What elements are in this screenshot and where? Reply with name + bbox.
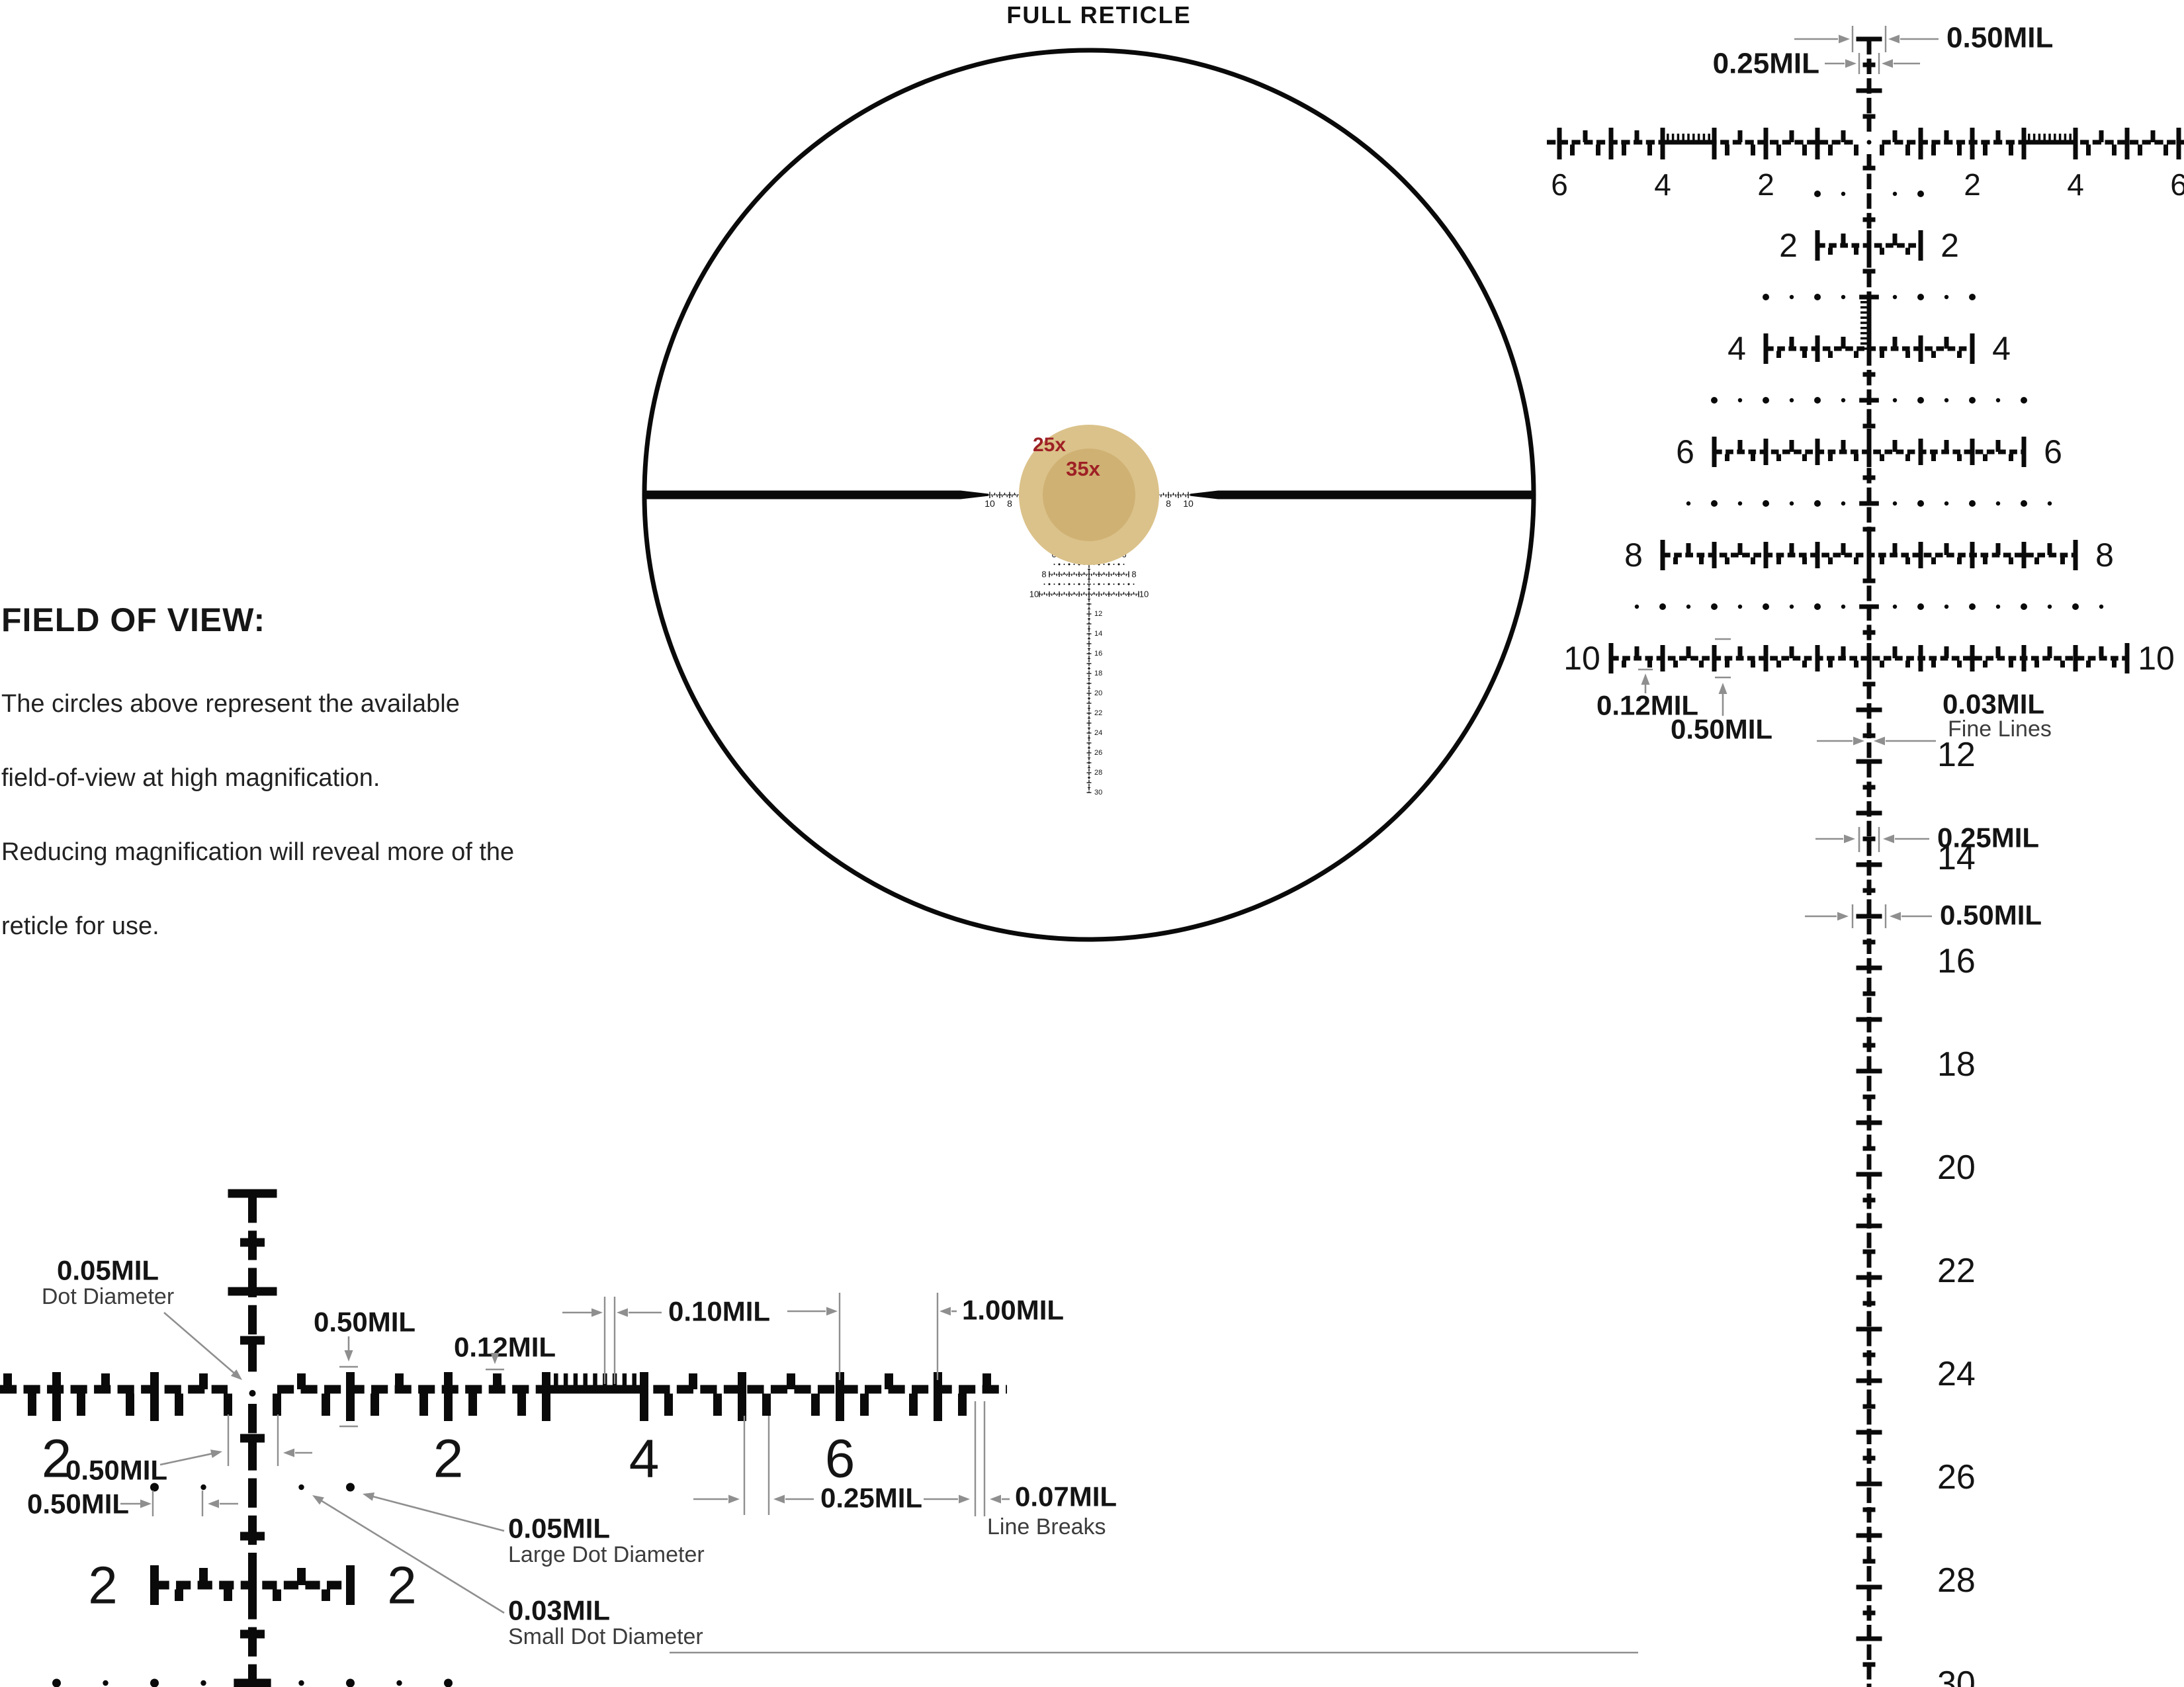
row-number: 10 bbox=[1139, 589, 1149, 599]
small-dot-label: 0.03MIL bbox=[508, 1595, 610, 1626]
ranging-dot bbox=[1064, 584, 1065, 585]
ranging-dot bbox=[1104, 584, 1105, 585]
ranging-dot bbox=[1094, 584, 1095, 585]
ranging-dot bbox=[1686, 501, 1690, 505]
arrowhead bbox=[1844, 835, 1855, 844]
magnification-label-35x: 35x bbox=[1066, 457, 1100, 481]
reticle-spec-sheet: 2468102468102244668810101214161820222426… bbox=[0, 0, 2184, 1687]
row-number: 8 bbox=[1131, 570, 1136, 580]
ranging-dot bbox=[1944, 501, 1948, 505]
ranging-dot bbox=[1841, 192, 1845, 196]
ranging-dot bbox=[1059, 584, 1061, 585]
ranging-dot bbox=[1814, 500, 1821, 507]
heavy-post-right bbox=[1190, 491, 1532, 499]
fov-line-1: The circles above represent the availabl… bbox=[1, 667, 514, 741]
ranging-dot bbox=[1084, 584, 1085, 585]
ranging-dot bbox=[1790, 295, 1794, 299]
arrowhead bbox=[1853, 737, 1864, 746]
large-dot-label: 0.05MIL bbox=[508, 1513, 610, 1544]
arrowhead bbox=[345, 1350, 353, 1362]
ranging-dot bbox=[1133, 584, 1135, 585]
axis-number: 2 bbox=[1964, 167, 1981, 202]
ranging-dot bbox=[1996, 501, 2000, 505]
ranging-dot bbox=[1841, 605, 1845, 609]
ranging-dot bbox=[298, 1680, 304, 1686]
drop-number: 18 bbox=[1094, 670, 1102, 677]
arrowhead bbox=[1890, 912, 1901, 921]
row-number: 8 bbox=[1624, 537, 1643, 574]
tall-tick-height-label: 0.50MIL bbox=[314, 1307, 415, 1338]
row-number: 6 bbox=[1676, 433, 1694, 470]
ranging-dot bbox=[1969, 500, 1976, 507]
ranging-dot bbox=[1118, 564, 1120, 566]
row-number: 2 bbox=[387, 1556, 417, 1615]
ranging-dot bbox=[1917, 500, 1924, 507]
ranging-dot bbox=[2099, 605, 2103, 609]
drop-number: 28 bbox=[1094, 769, 1102, 777]
drop-number: 22 bbox=[1094, 709, 1102, 717]
ranging-dot bbox=[1944, 295, 1948, 299]
ranging-dot bbox=[1944, 398, 1948, 402]
arrowhead bbox=[591, 1309, 603, 1317]
center-dot-caption: Dot Diameter bbox=[42, 1284, 174, 1309]
ranging-dot bbox=[1790, 605, 1794, 609]
ranging-dot bbox=[103, 1680, 108, 1686]
detail-diagram-annotations: 0.05MILDot Diameter0.50MIL0.12MIL0.10MIL… bbox=[27, 1255, 1117, 1650]
ranging-dot bbox=[1044, 584, 1045, 585]
top-small-tick-width-label: 0.25MIL bbox=[1713, 48, 1819, 80]
ranging-dot bbox=[1128, 584, 1130, 585]
arrowhead bbox=[140, 1500, 152, 1508]
ranging-dot bbox=[346, 1483, 355, 1492]
ranging-dot bbox=[1738, 605, 1742, 609]
ranging-dot bbox=[1763, 397, 1769, 404]
axis-number: 2 bbox=[1757, 167, 1774, 202]
ranging-dot bbox=[444, 1679, 453, 1687]
ranging-dot bbox=[1711, 397, 1718, 404]
drop-number: 12 bbox=[1094, 610, 1102, 618]
ranging-dot bbox=[1814, 191, 1821, 197]
arrowhead bbox=[1883, 835, 1894, 844]
ranging-dot bbox=[1763, 603, 1769, 610]
small-dot-caption: Small Dot Diameter bbox=[508, 1624, 703, 1649]
drop-number: 20 bbox=[1094, 689, 1102, 697]
drop-number: 24 bbox=[1094, 729, 1102, 737]
ranging-dot bbox=[1841, 501, 1845, 505]
fine-tick-spacing-label: 0.10MIL bbox=[668, 1296, 770, 1327]
ranging-dot bbox=[1078, 584, 1080, 585]
arrowhead bbox=[1641, 673, 1650, 685]
large-dot-caption: Large Dot Diameter bbox=[508, 1542, 705, 1567]
ranging-dot bbox=[200, 1680, 206, 1686]
ranging-dot bbox=[1711, 603, 1718, 610]
page-title: FULL RETICLE bbox=[1006, 1, 1191, 29]
ranging-dot bbox=[1841, 398, 1845, 402]
ranging-dot bbox=[1893, 605, 1897, 609]
ranging-dot bbox=[1123, 564, 1125, 565]
row-number: 8 bbox=[1041, 570, 1046, 580]
ranging-dot bbox=[1996, 605, 2000, 609]
ranging-dot bbox=[1659, 603, 1666, 610]
fov-line-4: reticle for use. bbox=[1, 889, 514, 963]
right-diagram-annotations: 0.50MIL0.25MIL0.12MIL0.50MIL0.03MILFine … bbox=[670, 22, 2053, 1653]
ranging-dot bbox=[200, 1485, 206, 1490]
drop-number: 16 bbox=[1094, 650, 1102, 658]
arrowhead bbox=[939, 1307, 951, 1316]
center-dot bbox=[249, 1390, 256, 1397]
line-width-label: 0.03MIL bbox=[1943, 689, 2044, 720]
row-number: 8 bbox=[2095, 537, 2114, 574]
ranging-dot bbox=[396, 1680, 402, 1686]
ranging-dot bbox=[1118, 584, 1120, 585]
field-of-view-heading: FIELD OF VIEW: bbox=[1, 601, 265, 639]
ranging-dot bbox=[2048, 605, 2052, 609]
arrowhead bbox=[361, 1490, 374, 1501]
line-breaks-caption: Line Breaks bbox=[987, 1514, 1106, 1539]
axis-number: 10 bbox=[1183, 498, 1194, 509]
ranging-dot bbox=[1814, 397, 1821, 404]
row-number: 4 bbox=[1727, 330, 1746, 367]
ranging-dot bbox=[150, 1679, 159, 1687]
ranging-dot bbox=[1893, 501, 1897, 505]
field-of-view-note: The circles above represent the availabl… bbox=[1, 667, 514, 963]
ranging-dot bbox=[2021, 397, 2027, 404]
drop-number: 24 bbox=[1937, 1355, 1976, 1393]
axis-number: 4 bbox=[629, 1429, 660, 1489]
axis-number: 6 bbox=[2170, 167, 2184, 202]
arrowhead bbox=[1837, 912, 1849, 921]
drop-number: 16 bbox=[1937, 942, 1976, 980]
arrowhead bbox=[283, 1449, 294, 1457]
page: { "page": { "title": "FULL RETICLE", "ba… bbox=[0, 0, 2184, 1687]
axis-number: 4 bbox=[1654, 167, 1671, 202]
ranging-dot bbox=[2072, 603, 2079, 610]
arrowhead bbox=[773, 1495, 785, 1504]
ranging-dot bbox=[1064, 564, 1065, 565]
ranging-dot bbox=[1108, 564, 1110, 566]
ranging-dot bbox=[1054, 564, 1055, 565]
ranging-dot bbox=[1790, 501, 1794, 505]
fov-line-3: Reducing magnification will reveal more … bbox=[1, 815, 514, 889]
arrowhead bbox=[1882, 60, 1893, 68]
axis-number: 10 bbox=[984, 498, 995, 509]
row-number: 4 bbox=[1992, 330, 2011, 367]
ranging-dot bbox=[1917, 191, 1924, 197]
large-tick-height-label: 0.50MIL bbox=[1671, 714, 1772, 745]
ranging-dot bbox=[1123, 584, 1125, 585]
ranging-dot bbox=[1049, 584, 1051, 585]
axis-number: 2 bbox=[433, 1429, 464, 1489]
arrowhead bbox=[617, 1309, 628, 1317]
arrowhead bbox=[1874, 737, 1885, 746]
row-number: 2 bbox=[1779, 227, 1798, 264]
arrowhead bbox=[1719, 683, 1727, 694]
ranging-dot bbox=[1054, 584, 1055, 585]
ranging-dot bbox=[1104, 564, 1105, 565]
center-gap-label: 0.50MIL bbox=[66, 1455, 167, 1486]
ranging-dot bbox=[1841, 295, 1845, 299]
ranging-dot bbox=[52, 1679, 61, 1687]
ranging-dot bbox=[1763, 500, 1769, 507]
ranging-dot bbox=[1944, 605, 1948, 609]
ranging-dot bbox=[1893, 192, 1897, 196]
drop-number: 26 bbox=[1937, 1458, 1976, 1496]
heavy-post-left bbox=[646, 491, 988, 499]
ranging-dot bbox=[1738, 501, 1742, 505]
row-number: 2 bbox=[88, 1556, 118, 1615]
ranging-dot bbox=[1098, 584, 1100, 585]
drop-number: 20 bbox=[1937, 1148, 1976, 1187]
ranging-dot bbox=[1969, 397, 1976, 404]
mil-spacing-label: 1.00MIL bbox=[962, 1295, 1064, 1326]
right-reticle-diagram: 24624622446688101012141618202224262830 bbox=[1547, 39, 2184, 1687]
arrowhead bbox=[1845, 60, 1856, 68]
arrowhead bbox=[208, 1500, 219, 1508]
drop-number: 26 bbox=[1094, 749, 1102, 757]
arrowhead bbox=[959, 1495, 970, 1504]
center-dot bbox=[1867, 140, 1872, 145]
ranging-dot bbox=[1059, 564, 1061, 566]
ranging-dot bbox=[1069, 564, 1070, 566]
ranging-dot bbox=[2048, 501, 2052, 505]
center-dot-label: 0.05MIL bbox=[57, 1255, 159, 1286]
ranging-dot bbox=[1074, 584, 1075, 585]
axis-number: 6 bbox=[825, 1429, 855, 1489]
ranging-dot bbox=[1108, 584, 1110, 585]
ranging-dot bbox=[1917, 397, 1924, 404]
ranging-dot bbox=[346, 1679, 355, 1687]
drop-large-tick-width-label: 0.50MIL bbox=[1940, 900, 2042, 931]
ranging-dot bbox=[1074, 564, 1075, 565]
axis-number: 8 bbox=[1007, 498, 1012, 509]
row-number: 6 bbox=[2044, 433, 2062, 470]
ranging-dot bbox=[1893, 398, 1897, 402]
quarter-spacing-label: 0.25MIL bbox=[820, 1483, 922, 1514]
row-number: 2 bbox=[1941, 227, 1959, 264]
arrowhead bbox=[210, 1448, 223, 1458]
small-tick-height-label: 0.12MIL bbox=[454, 1332, 556, 1363]
axis-number: 4 bbox=[2067, 167, 2084, 202]
arrowhead bbox=[728, 1495, 740, 1504]
row-number: 10 bbox=[2138, 640, 2175, 677]
ranging-dot bbox=[1114, 564, 1115, 565]
ranging-dot bbox=[1996, 398, 2000, 402]
arrowhead bbox=[1839, 35, 1850, 44]
magnification-label-25x: 25x bbox=[1033, 434, 1066, 456]
ranging-dot bbox=[1114, 584, 1115, 585]
drop-number: 30 bbox=[1094, 789, 1102, 797]
drop-number: 22 bbox=[1937, 1252, 1976, 1290]
ranging-dot bbox=[1893, 295, 1897, 299]
ranging-dot bbox=[1814, 603, 1821, 610]
ranging-dot bbox=[1917, 294, 1924, 300]
line-width-caption: Fine Lines bbox=[1948, 716, 2052, 742]
ranging-dot bbox=[1969, 603, 1976, 610]
fov-line-2: field-of-view at high magnification. bbox=[1, 741, 514, 815]
ranging-dot bbox=[1686, 605, 1690, 609]
arrowhead bbox=[990, 1495, 1001, 1504]
ranging-dot bbox=[1917, 603, 1924, 610]
ranging-dot bbox=[298, 1485, 304, 1490]
ranging-dot bbox=[1814, 294, 1821, 300]
axis-number: 8 bbox=[1166, 498, 1171, 509]
drop-number: 28 bbox=[1937, 1561, 1976, 1600]
drop-number: 14 bbox=[1094, 630, 1102, 638]
arrowhead bbox=[310, 1491, 324, 1504]
ranging-dot bbox=[2021, 603, 2027, 610]
top-tick-width-label: 0.50MIL bbox=[1946, 22, 2053, 54]
axis-number: 6 bbox=[1551, 167, 1568, 202]
ranging-dot bbox=[1635, 605, 1639, 609]
row-number: 10 bbox=[1563, 640, 1600, 677]
ranging-dot bbox=[2021, 500, 2027, 507]
ranging-dot bbox=[1069, 584, 1070, 585]
ranging-dot bbox=[1969, 294, 1976, 300]
line-breaks-label: 0.07MIL bbox=[1015, 1481, 1117, 1512]
ranging-dot bbox=[1711, 500, 1718, 507]
ranging-dot bbox=[1790, 398, 1794, 402]
arrowhead bbox=[1888, 35, 1900, 44]
drop-small-tick-width-label: 0.25MIL bbox=[1937, 822, 2039, 853]
ranging-dot bbox=[1738, 398, 1742, 402]
drop-number: 18 bbox=[1937, 1045, 1976, 1084]
row-number: 10 bbox=[1029, 589, 1039, 599]
drop-number: 30 bbox=[1937, 1665, 1976, 1687]
dot-spacing-label: 0.50MIL bbox=[27, 1489, 129, 1520]
arrowhead bbox=[826, 1307, 838, 1316]
ranging-dot bbox=[1763, 294, 1769, 300]
